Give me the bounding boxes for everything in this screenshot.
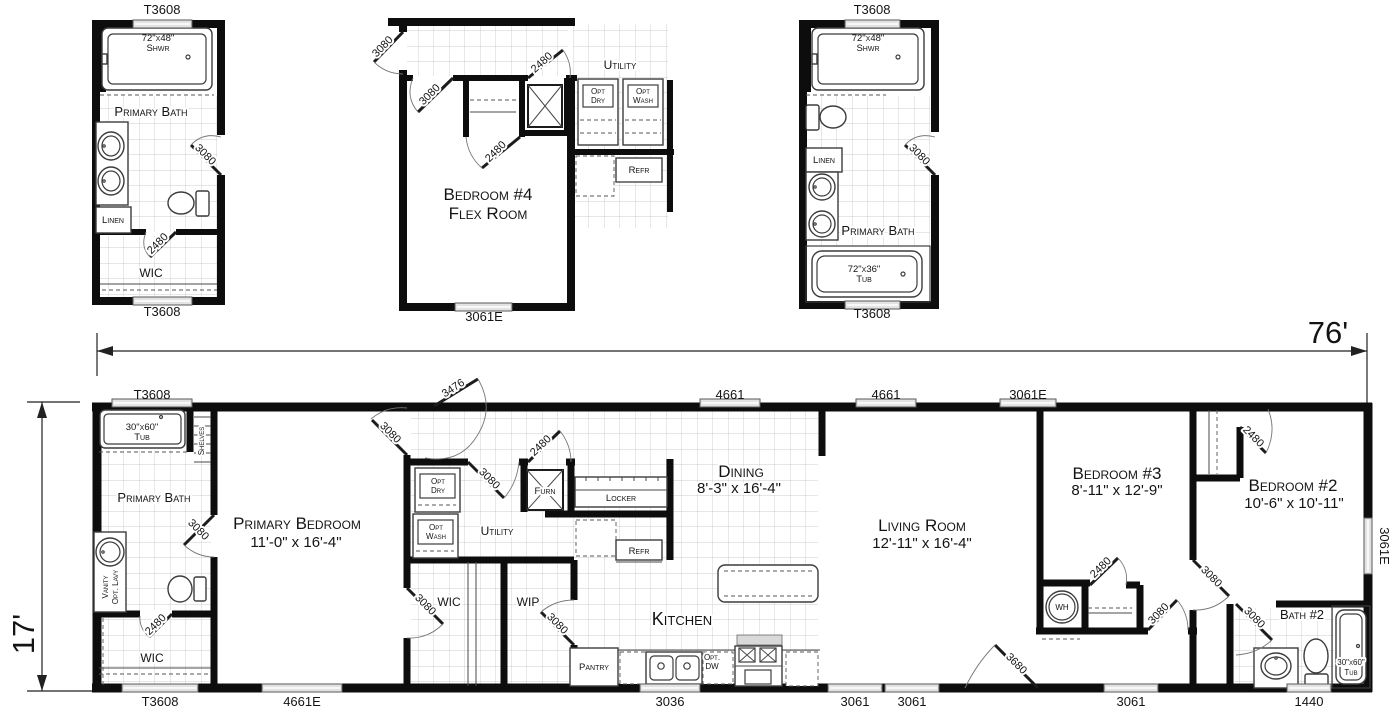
room-label-bath2: Bath #2 xyxy=(1280,607,1324,622)
window-label: 3061E xyxy=(1377,527,1392,565)
door-size-label: 3680 xyxy=(1003,651,1029,677)
room-label-kitchen: Kitchen xyxy=(652,609,712,629)
window-label: T3608 xyxy=(134,387,171,402)
plan-option-bath-shower: T3608 72"x48" Shwr Primary Bath 3080 Lin… xyxy=(92,2,225,319)
tub-label: Tub xyxy=(1344,668,1357,677)
furnace-label: Furn xyxy=(535,486,556,497)
room-label-utility: Utility xyxy=(604,58,637,72)
vanity-sinks-icon xyxy=(806,172,838,240)
door-size-label: 3080 xyxy=(377,420,403,446)
plan-option-bath-tub: T3608 72"x48" Shwr Linen Primary Bath 30… xyxy=(799,2,939,321)
window-label: 3061E xyxy=(1009,387,1047,402)
shelves-label: Shelves xyxy=(197,427,206,456)
optional-cabinet xyxy=(786,652,818,686)
room-size-bedroom2: 10'-6" x 10'-11" xyxy=(1244,495,1344,512)
tub-size-label: 30"x60" xyxy=(1337,658,1365,667)
overall-height-label: 17' xyxy=(6,614,41,654)
room-label-utility: Utility xyxy=(481,524,514,538)
pantry-label: Pantry xyxy=(579,662,609,673)
furnace-box-icon xyxy=(528,85,562,127)
room-label-bedroom4: Bedroom #4 xyxy=(444,185,533,204)
window-label: 4661 xyxy=(716,387,745,402)
window-label: 1440 xyxy=(1295,694,1324,709)
stove-icon xyxy=(735,635,782,686)
room-label-living: Living Room xyxy=(878,516,966,535)
water-heater-icon: WH xyxy=(1046,591,1078,623)
vanity-label: Vanity xyxy=(101,575,110,598)
window-label: 3036 xyxy=(656,694,685,709)
toilet-icon xyxy=(168,191,209,216)
toilet-icon xyxy=(1304,639,1328,688)
linen-label: Linen xyxy=(813,155,835,166)
room-label-primary-bath: Primary Bath xyxy=(114,104,187,119)
main-floorplan: Opt Dry Opt Wash Furn Locker Refr xyxy=(92,377,1392,709)
base-cabinet xyxy=(620,652,646,684)
door-size-label: 3080 xyxy=(1146,601,1172,627)
room-label-bedroom3: Bedroom #3 xyxy=(1073,464,1162,483)
tub-label: Tub xyxy=(134,432,150,443)
locker-label: Locker xyxy=(606,493,636,504)
window-label: T3608 xyxy=(144,2,181,17)
toilet-icon xyxy=(806,105,846,130)
bath2-sink-icon xyxy=(1254,648,1298,688)
door-size-label: 2480 xyxy=(1240,424,1266,450)
optional-dryer-box: Opt Dry xyxy=(415,468,460,512)
window-label: T3608 xyxy=(854,306,891,321)
room-label-wip: WIP xyxy=(517,595,540,609)
locker-bench: Locker xyxy=(575,477,667,507)
svg-text:Opt: Opt xyxy=(431,477,445,486)
optional-washer-box: Opt Wash xyxy=(413,514,458,558)
water-heater-label: WH xyxy=(1055,603,1069,612)
window-label: 4661E xyxy=(283,694,321,709)
svg-text:Opt: Opt xyxy=(591,87,605,96)
floorplan-canvas: T3608 72"x48" Shwr Primary Bath 3080 Lin… xyxy=(0,0,1400,709)
room-label-wic: WIC xyxy=(139,266,163,280)
pantry-cabinet: Pantry xyxy=(570,648,618,686)
overall-width-label: 76' xyxy=(1308,315,1348,350)
room-size-primary-bedroom: 11'-0" x 16'-4" xyxy=(250,534,341,551)
door-size-label: 3080 xyxy=(370,34,396,60)
optional-washer-box: Opt Wash xyxy=(623,79,663,145)
vanity-sinks-icon xyxy=(96,122,128,205)
floorplan-page: T3608 72"x48" Shwr Primary Bath 3080 Lin… xyxy=(0,0,1400,709)
linen-label: Linen xyxy=(102,215,124,226)
shower-label: Shwr xyxy=(856,43,879,54)
room-size-bedroom3: 8'-11" x 12'-9" xyxy=(1071,482,1162,499)
window-label: 3061 xyxy=(1117,694,1146,709)
window-label: 3061E xyxy=(465,309,503,324)
vanity-label: Opt. Lavy xyxy=(111,570,120,604)
room-label-bedroom2: Bedroom #2 xyxy=(1249,476,1338,495)
door-size-label: 3080 xyxy=(417,82,443,108)
room-label-primary-bath: Primary Bath xyxy=(117,490,190,505)
window-label: 4661 xyxy=(872,387,901,402)
svg-text:Wash: Wash xyxy=(633,96,653,105)
svg-text:Opt.: Opt. xyxy=(704,653,720,662)
vanity-sink-icon xyxy=(94,532,126,612)
window-label: 3061 xyxy=(898,694,927,709)
window-label: T3608 xyxy=(144,304,181,319)
room-label-dining: Dining xyxy=(718,462,764,481)
room-label-primary-bedroom: Primary Bedroom xyxy=(233,514,361,533)
svg-text:Opt: Opt xyxy=(636,87,650,96)
furnace-icon: Furn xyxy=(527,470,563,510)
svg-text:Wash: Wash xyxy=(426,532,446,541)
tub-label: Tub xyxy=(856,274,872,285)
room-size-living: 12'-11" x 16'-4" xyxy=(872,535,972,552)
refrigerator-label: Refr xyxy=(629,546,650,557)
window-label: 3061 xyxy=(841,694,870,709)
optional-dishwasher: Opt. DW xyxy=(703,652,733,684)
window-label: T3608 xyxy=(142,694,179,709)
door-size-label: 3476 xyxy=(440,377,467,400)
window-label: T3608 xyxy=(854,2,891,17)
toilet-icon xyxy=(168,576,206,602)
shower-label: Shwr xyxy=(146,43,169,54)
room-label-primary-bath: Primary Bath xyxy=(841,223,914,238)
svg-text:Opt: Opt xyxy=(429,523,443,532)
room-size-dining: 8'-3" x 16'-4" xyxy=(697,480,781,497)
optional-dryer-box: Opt Dry xyxy=(578,79,618,145)
room-label-flex: Flex Room xyxy=(449,204,528,223)
kitchen-island xyxy=(718,565,818,602)
door-size-label: 2480 xyxy=(1088,555,1114,581)
svg-text:DW: DW xyxy=(705,662,719,671)
plan-option-bedroom4-flex: Opt Dry Opt Wash Refr 3080 3080 2480 248… xyxy=(370,18,674,324)
door-size-label: 2480 xyxy=(483,139,509,165)
kitchen-sink-icon xyxy=(646,652,702,684)
svg-text:Dry: Dry xyxy=(431,486,445,495)
svg-text:Dry: Dry xyxy=(591,96,605,105)
svg-text:Refr: Refr xyxy=(629,165,650,176)
room-label-wic2: WIC xyxy=(437,595,461,609)
room-label-wic: WIC xyxy=(140,651,164,665)
dimension-height: 17' xyxy=(6,402,92,691)
